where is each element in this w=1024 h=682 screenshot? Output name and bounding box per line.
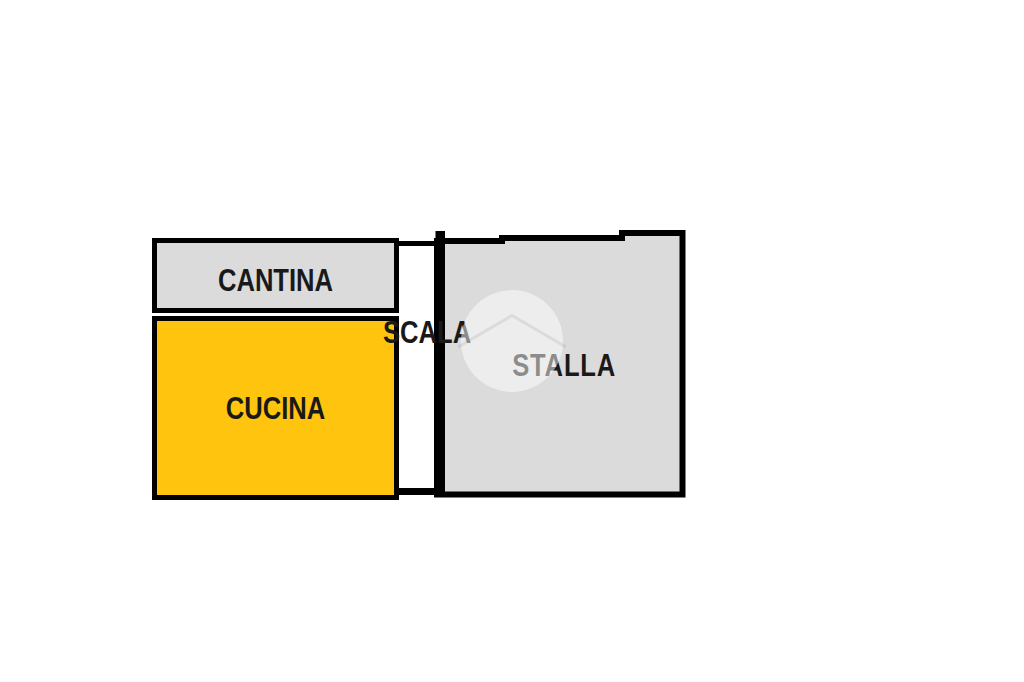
room-cantina xyxy=(152,238,399,313)
room-cucina xyxy=(152,316,399,500)
floor-plan: CANTINA CUCINA SCALA STALLA xyxy=(0,0,1024,682)
stalla-left-wall xyxy=(436,231,446,497)
room-stalla-outline xyxy=(437,233,683,495)
room-stalla xyxy=(430,228,692,504)
